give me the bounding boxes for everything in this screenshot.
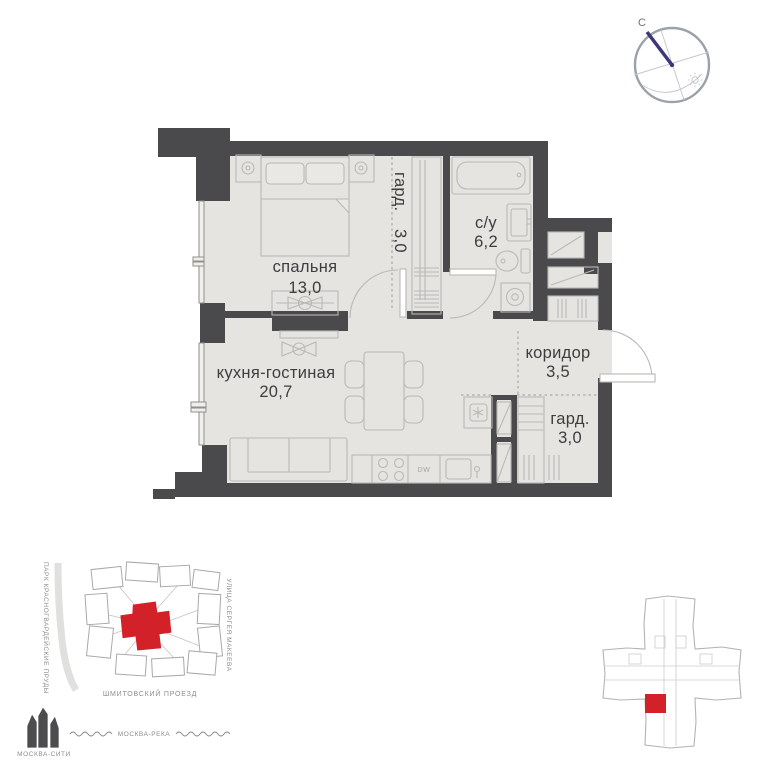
room-label-bedroom: спальня bbox=[273, 258, 338, 276]
room-area-corridor: 3,5 bbox=[546, 363, 570, 381]
moscow-city-icon bbox=[27, 707, 59, 748]
north-label: С bbox=[638, 17, 646, 29]
room-label-corridor: коридор bbox=[525, 344, 590, 362]
compass: С bbox=[634, 17, 709, 102]
room-label-bathroom: с/у bbox=[475, 214, 497, 232]
room-label-wardrobe-bottom: гард. bbox=[550, 410, 589, 428]
park-label: ПАРК КРАСНОГВАРДЕЙСКИЕ ПРУДЫ bbox=[42, 562, 51, 694]
room-area-kitchen-living: 20,7 bbox=[259, 383, 292, 401]
floor-plate-map bbox=[603, 596, 741, 748]
room-label-wardrobe-top: гард. bbox=[391, 172, 409, 211]
room-label-kitchen-living: кухня-гостиная bbox=[217, 364, 336, 382]
room-area-bedroom: 13,0 bbox=[288, 279, 321, 297]
location-map: ПАРК КРАСНОГВАРДЕЙСКИЕ ПРУДЫ УЛИЦА СЕРГЕ… bbox=[17, 562, 232, 758]
floorplan-page: спальня 13,0 гард. 3,0 с/у 6,2 кухня-гос… bbox=[0, 0, 768, 768]
park-path bbox=[58, 563, 76, 690]
river-wave-left bbox=[70, 732, 112, 736]
river-wave-right bbox=[176, 732, 230, 736]
room-area-wardrobe-top: 3,0 bbox=[391, 229, 409, 253]
compass-needle bbox=[647, 32, 672, 65]
moscow-city-label: МОСКВА-СИТИ bbox=[17, 751, 71, 758]
street-bottom-label: ШМИТОВСКИЙ ПРОЕЗД bbox=[103, 689, 197, 698]
room-area-bathroom: 6,2 bbox=[474, 233, 498, 251]
building-complex bbox=[85, 562, 223, 677]
apartment-marker bbox=[645, 694, 666, 713]
room-area-wardrobe-bottom: 3,0 bbox=[558, 429, 582, 447]
street-right-label: УЛИЦА СЕРГЕЯ МАКЕЕВА bbox=[225, 578, 232, 671]
floorplan-canvas: спальня 13,0 гард. 3,0 с/у 6,2 кухня-гос… bbox=[0, 0, 768, 768]
project-marker-cross bbox=[120, 601, 172, 652]
river-label: МОСКВА-РЕКА bbox=[118, 731, 171, 738]
dishwasher-label: DW bbox=[418, 467, 431, 474]
